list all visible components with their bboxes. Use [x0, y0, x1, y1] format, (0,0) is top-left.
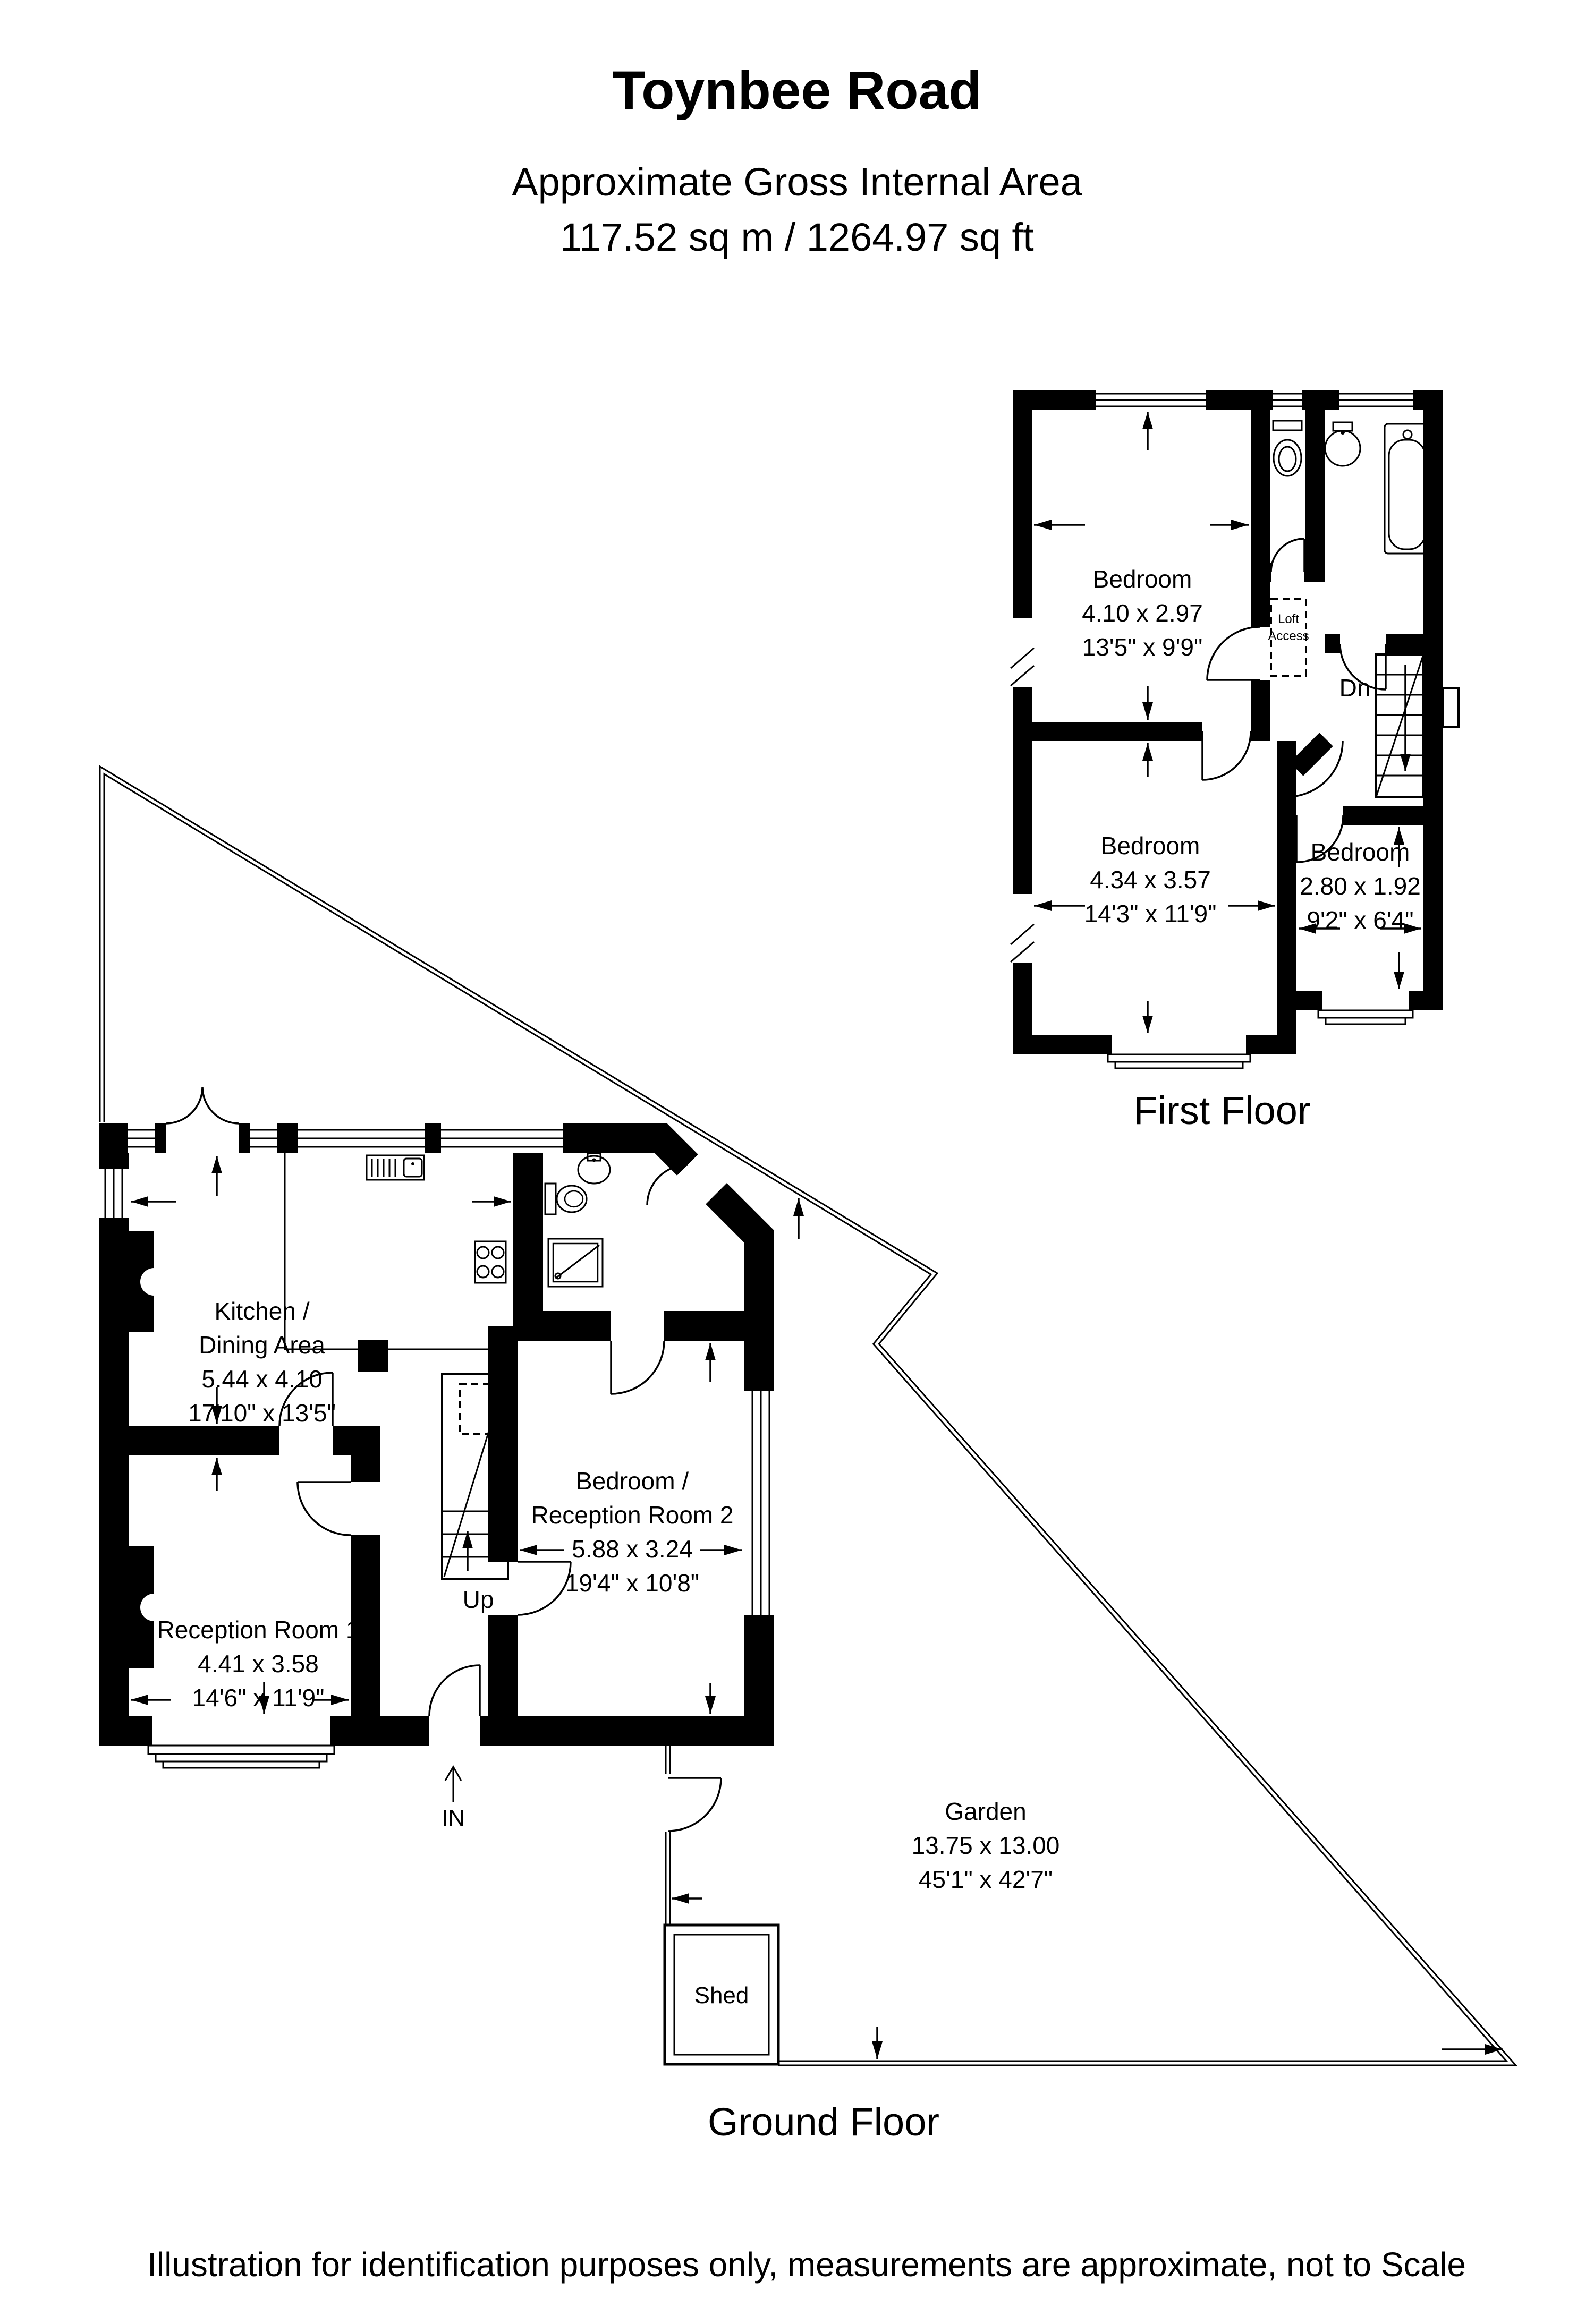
loft-access-label: Loft Access: [1268, 611, 1309, 645]
garden-label: Garden 13.75 x 13.00 45'1" x 42'7": [912, 1794, 1060, 1896]
entrance-in-arrow: [445, 1767, 461, 1802]
toilet-icon-gf: [545, 1184, 587, 1214]
bedroom3-name: Bedroom: [1300, 835, 1421, 869]
gf-dimension-arrows: [131, 1156, 1503, 2059]
kitchen-name2: Dining Area: [188, 1328, 336, 1362]
basin-icon-ff: [1325, 422, 1360, 466]
ground-floor-title: Ground Floor: [708, 2099, 939, 2144]
bedroom-reception2-imperial: 19'4" x 10'8": [531, 1566, 734, 1600]
entrance-label: IN: [442, 1805, 465, 1832]
bath-icon: [1385, 424, 1429, 554]
area-text: 117.52 sq m / 1264.97 sq ft: [560, 215, 1033, 260]
bedroom3-metric: 2.80 x 1.92: [1300, 869, 1421, 903]
floorplan-page: Toynbee Road Approximate Gross Internal …: [0, 0, 1594, 2324]
shower-icon: [548, 1239, 603, 1287]
french-doors-arc: [166, 1087, 239, 1123]
garden-imperial: 45'1" x 42'7": [912, 1862, 1060, 1896]
page-title: Toynbee Road: [612, 59, 981, 122]
bedroom1-metric: 4.10 x 2.97: [1082, 596, 1203, 630]
stairs-up-label: Up: [463, 1585, 494, 1614]
shed-label: Shed: [694, 1982, 749, 2009]
garden-gate-arc: [668, 1778, 721, 1831]
bedroom2-name: Bedroom: [1084, 829, 1217, 863]
reception1-imperial: 14'6" x 11'9": [157, 1681, 360, 1715]
bedroom3-label: Bedroom 2.80 x 1.92 9'2" x 6'4": [1300, 835, 1421, 937]
kitchen-metric: 5.44 x 4.10: [188, 1362, 336, 1396]
bedroom1-name: Bedroom: [1082, 562, 1203, 596]
bedroom-reception2-name1: Bedroom /: [531, 1464, 734, 1498]
bedroom2-metric: 4.34 x 3.57: [1084, 863, 1217, 897]
kitchen-label: Kitchen / Dining Area 5.44 x 4.10 17'10"…: [188, 1294, 336, 1430]
hob-icon: [475, 1241, 506, 1283]
basin-icon-gf: [578, 1153, 610, 1184]
kitchen-name1: Kitchen /: [188, 1294, 336, 1328]
kitchen-sink-icon: [367, 1155, 424, 1180]
bedroom1-imperial: 13'5" x 9'9": [1082, 630, 1203, 664]
garden-name: Garden: [912, 1794, 1060, 1828]
bedroom1-label: Bedroom 4.10 x 2.97 13'5" x 9'9": [1082, 562, 1203, 664]
garden-metric: 13.75 x 13.00: [912, 1828, 1060, 1862]
toilet-icon-ff: [1273, 421, 1302, 476]
disclaimer: Illustration for identification purposes…: [147, 2245, 1466, 2284]
first-floor-title: First Floor: [1134, 1088, 1311, 1133]
subtitle: Approximate Gross Internal Area: [512, 159, 1082, 205]
reception1-name: Reception Room 1: [157, 1613, 360, 1647]
bedroom-reception2-metric: 5.88 x 3.24: [531, 1532, 734, 1566]
bedroom2-imperial: 14'3" x 11'9": [1084, 897, 1217, 931]
entrance-door-arc: [429, 1665, 480, 1716]
reception1-metric: 4.41 x 3.58: [157, 1647, 360, 1681]
kitchen-imperial: 17'10" x 13'5": [188, 1396, 336, 1430]
stairs-down-label: Dn: [1339, 674, 1371, 702]
bedroom-reception2-label: Bedroom / Reception Room 2 5.88 x 3.24 1…: [531, 1464, 734, 1600]
bedroom-reception2-name2: Reception Room 2: [531, 1498, 734, 1532]
reception1-label: Reception Room 1 4.41 x 3.58 14'6" x 11'…: [157, 1613, 360, 1715]
bedroom3-imperial: 9'2" x 6'4": [1300, 903, 1421, 937]
bedroom2-label: Bedroom 4.34 x 3.57 14'3" x 11'9": [1084, 829, 1217, 931]
